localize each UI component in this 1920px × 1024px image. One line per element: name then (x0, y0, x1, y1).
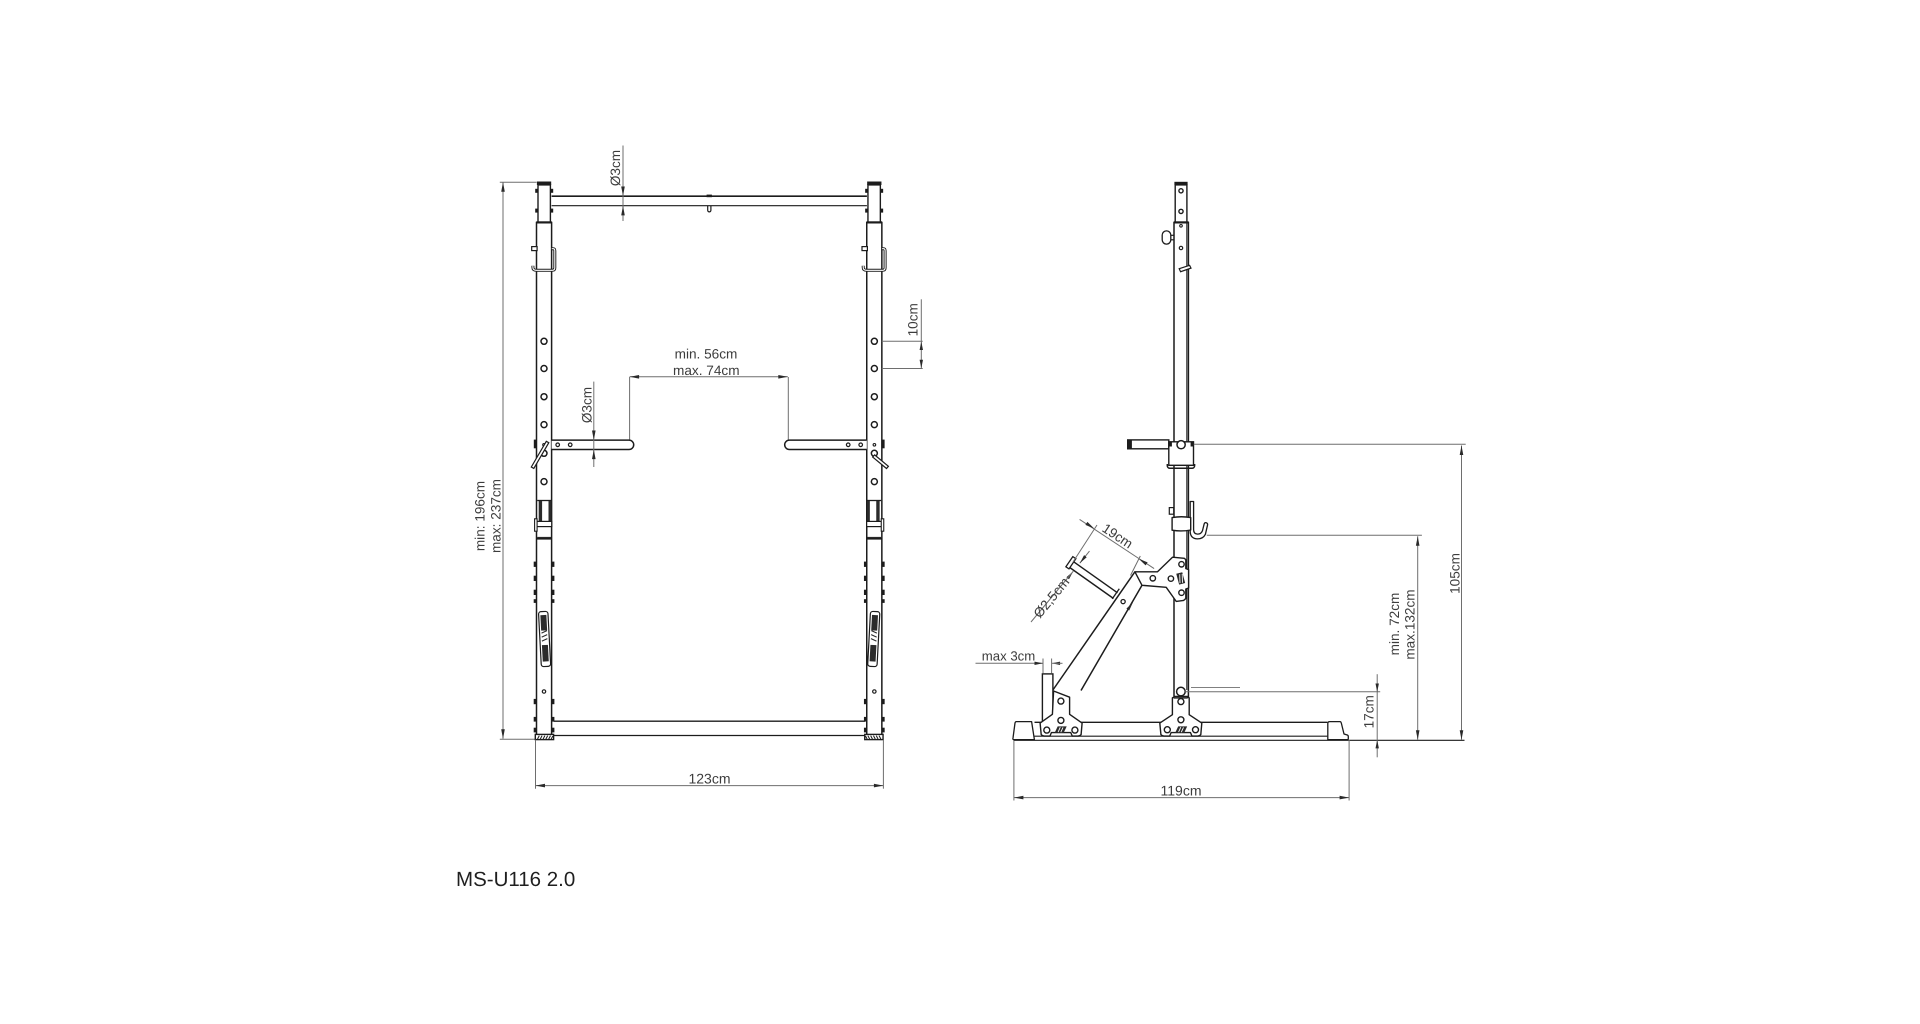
svg-text:min. 56cm: min. 56cm (675, 346, 738, 361)
svg-text:17cm: 17cm (1362, 695, 1377, 728)
svg-text:123cm: 123cm (688, 771, 730, 787)
svg-text:105cm: 105cm (1448, 553, 1463, 594)
svg-text:max. 74cm: max. 74cm (673, 363, 739, 378)
svg-text:119cm: 119cm (1161, 783, 1202, 799)
svg-text:Ø3cm: Ø3cm (608, 150, 623, 186)
svg-text:MS-U116 2.0: MS-U116 2.0 (456, 868, 575, 891)
svg-text:max.132cm: max.132cm (1402, 589, 1417, 659)
svg-text:10cm: 10cm (906, 303, 921, 336)
svg-text:max 3cm: max 3cm (982, 649, 1036, 664)
svg-text:min. 72cm: min. 72cm (1387, 593, 1402, 656)
svg-text:min: 196cm: min: 196cm (472, 481, 487, 551)
svg-text:max: 237cm: max: 237cm (489, 479, 504, 553)
svg-text:Ø3cm: Ø3cm (580, 387, 595, 423)
